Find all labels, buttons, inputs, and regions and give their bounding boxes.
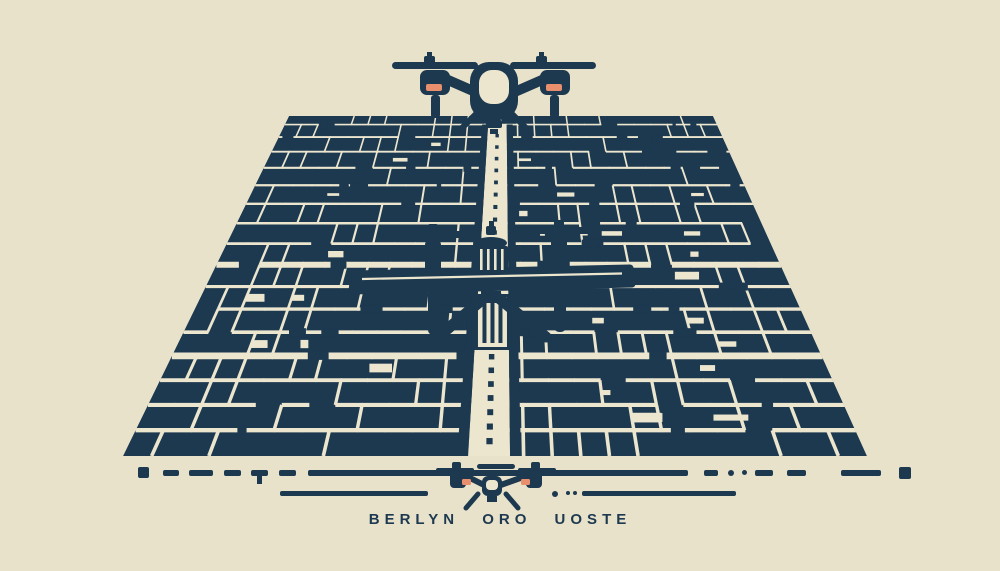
caption-title: BERLYN ORO UOSTE: [0, 511, 1000, 528]
drone-airport-illustration: [0, 0, 1000, 571]
landing-pad-marker: [521, 479, 530, 485]
landing-pad-marker: [546, 84, 562, 91]
small-drone-icon: [436, 462, 556, 508]
illustration-canvas: BERLYN ORO UOSTE: [0, 0, 1000, 571]
landing-pad-marker: [426, 84, 442, 91]
landing-pad-marker: [462, 479, 471, 485]
